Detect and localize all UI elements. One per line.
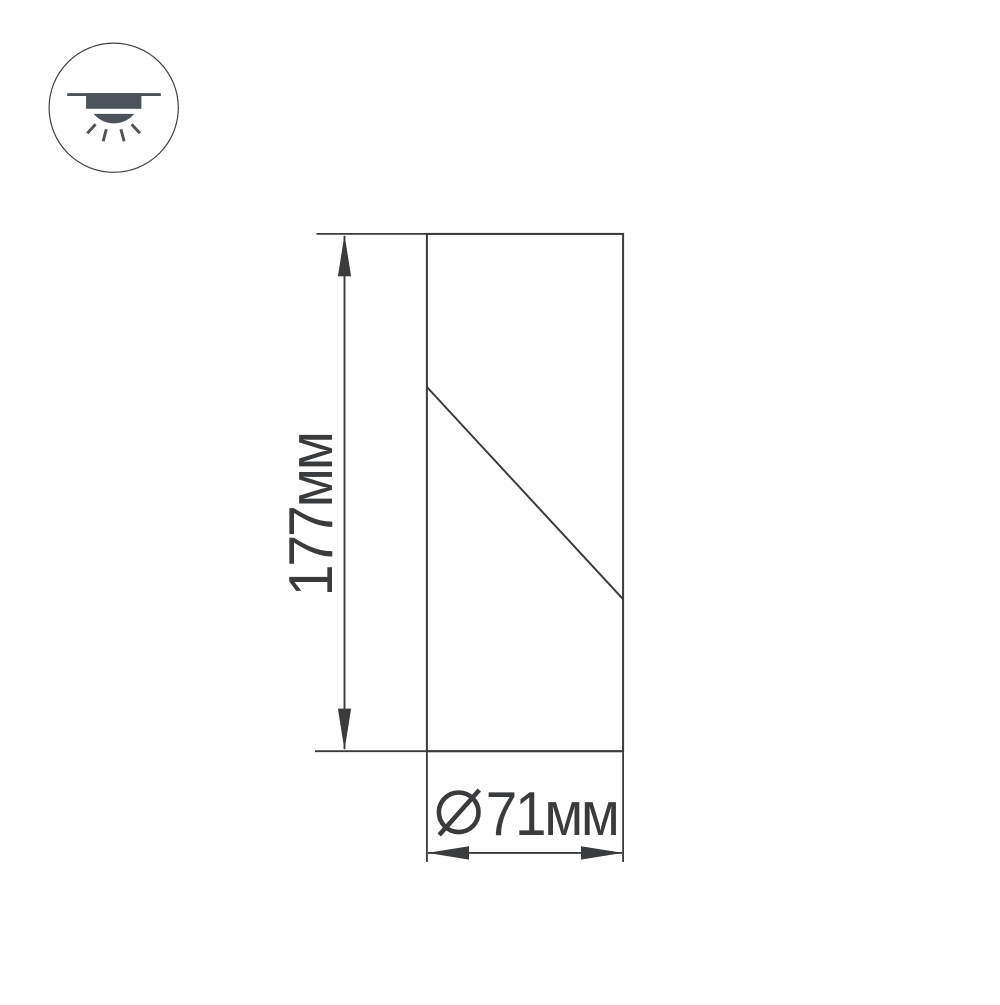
svg-text:71мм: 71мм xyxy=(486,778,618,848)
svg-text:177мм: 177мм xyxy=(276,433,346,596)
